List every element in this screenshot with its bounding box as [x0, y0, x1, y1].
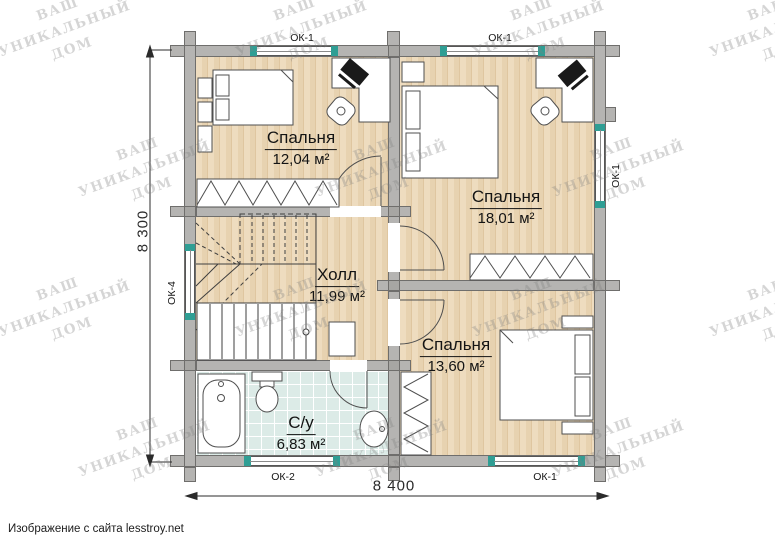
hall-cabinet	[329, 322, 355, 356]
bed-bedroom-2	[402, 86, 498, 178]
room-name: Спальня	[470, 187, 542, 209]
nightstand-bedroom-3	[562, 422, 593, 434]
chair-bedroom-1	[324, 94, 358, 128]
dimension-vertical: 8 300	[135, 210, 152, 253]
room-area: 6,83 м²	[277, 436, 326, 453]
room-name: Спальня	[265, 128, 337, 150]
bed-bedroom-3	[500, 330, 593, 420]
room-name: С/у	[286, 413, 316, 435]
room-area: 13,60 м²	[420, 358, 492, 375]
bathtub	[198, 374, 245, 453]
room-area: 18,01 м²	[470, 210, 542, 227]
window-label-ok2-bottom: ОК-2	[271, 471, 295, 483]
nightstand-bedroom-3	[562, 316, 593, 328]
nightstand-bedroom-2	[402, 62, 424, 82]
room-name: Холл	[315, 265, 359, 287]
plan-graphics	[0, 0, 775, 548]
room-label-bedroom-1: Спальня 12,04 м²	[265, 128, 337, 168]
room-area: 11,99 м²	[309, 288, 365, 305]
chair-bedroom-2	[528, 94, 562, 128]
room-label-bedroom-2: Спальня 18,01 м²	[470, 187, 542, 227]
nightstands-bedroom-1	[198, 78, 212, 152]
bed-bedroom-1	[213, 70, 293, 125]
wardrobe-bedroom-1	[197, 179, 339, 207]
window-label-ok4-left: ОК-4	[166, 281, 178, 305]
toilet	[252, 372, 282, 412]
window-label-ok1-top-right: ОК-1	[488, 32, 512, 44]
room-name: Спальня	[420, 335, 492, 357]
room-label-bedroom-3: Спальня 13,60 м²	[420, 335, 492, 375]
dimension-horizontal: 8 400	[373, 478, 416, 495]
sink	[360, 411, 388, 447]
source-caption: Изображение с сайта lesstroy.net	[8, 523, 184, 535]
wardrobe-bedroom-2	[470, 254, 593, 280]
staircase	[196, 214, 316, 360]
room-label-bathroom: С/у 6,83 м²	[277, 413, 326, 453]
window-label-ok1-top-left: ОК-1	[290, 32, 314, 44]
window-label-ok1-bottom: ОК-1	[533, 471, 557, 483]
floor-plan: Спальня 12,04 м² Спальня 18,01 м² Холл 1…	[0, 0, 775, 548]
furniture	[197, 58, 593, 455]
wardrobe-bedroom-3	[401, 372, 431, 455]
room-area: 12,04 м²	[265, 151, 337, 168]
window-label-ok1-right: ОК-1	[610, 164, 622, 188]
room-label-hall: Холл 11,99 м²	[309, 265, 365, 305]
